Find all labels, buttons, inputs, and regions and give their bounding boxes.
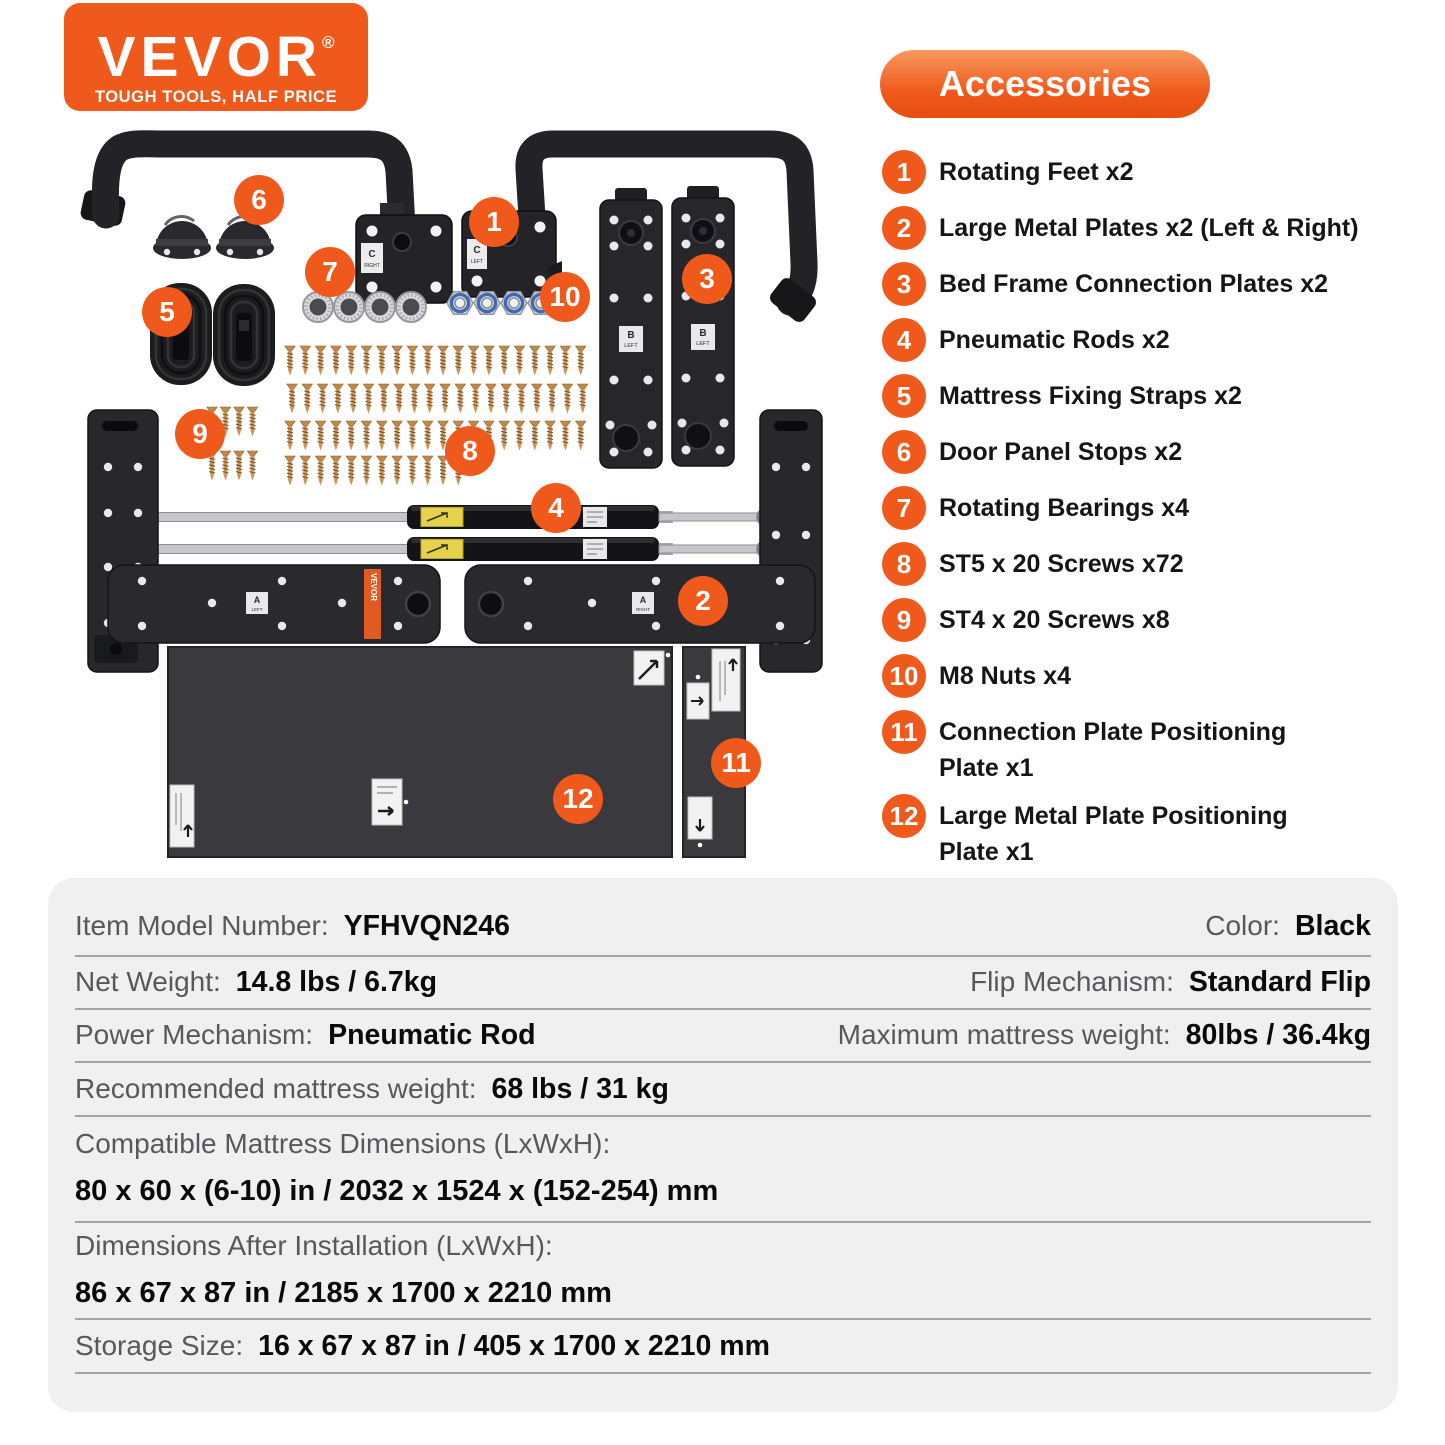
vevor-strip-label: VEVOR: [369, 573, 378, 601]
item-label: Rotating Bearings x4: [939, 486, 1189, 530]
spec-cell: Color: Black: [1205, 910, 1371, 943]
list-item-1: 1 Rotating Feet x2: [882, 150, 1427, 194]
item-number-badge: 2: [882, 206, 926, 250]
spec-label: Color:: [1205, 910, 1280, 942]
accessories-title: Accessories: [939, 63, 1151, 105]
spec-cell: Flip Mechanism: Standard Flip: [970, 966, 1371, 999]
collage-badge-11: 11: [711, 738, 761, 788]
spec-cell: Storage Size: 16 x 67 x 87 in / 405 x 17…: [75, 1330, 770, 1363]
spec-cell: Net Weight: 14.8 lbs / 6.7kg: [75, 966, 437, 999]
spec-value: 68 lbs / 31 kg: [492, 1073, 669, 1106]
list-item-4: 4 Pneumatic Rods x2: [882, 318, 1427, 362]
brand-text: VEVOR®: [64, 13, 368, 87]
item-label: Door Panel Stops x2: [939, 430, 1182, 474]
item-number-badge: 11: [882, 710, 926, 754]
collage-badge-5: 5: [142, 287, 192, 337]
pneumatic-rod-1: [138, 505, 774, 529]
spec-label: Net Weight:: [75, 966, 221, 998]
a-plate-right-label: A: [640, 595, 647, 605]
spec-cell: Power Mechanism: Pneumatic Rod: [75, 1019, 536, 1052]
list-item-12: 12 Large Metal Plate Positioning Plate x…: [882, 794, 1427, 870]
collage-badge-2: 2: [678, 576, 728, 626]
c-plate-right: C RIGHT: [356, 203, 452, 303]
panel-sticker-bottomleft: [170, 785, 194, 847]
collage-badge-9: 9: [175, 409, 225, 459]
pneumatic-rod-2: [138, 537, 774, 561]
pneumatic-rods: [138, 505, 774, 561]
item-number-badge: 10: [882, 654, 926, 698]
registered-mark: ®: [322, 33, 335, 52]
spec-label: Item Model Number:: [75, 910, 329, 942]
collage-badge-6: 6: [234, 175, 284, 225]
list-item-8: 8 ST5 x 20 Screws x72: [882, 542, 1427, 586]
spec-row-recommended-weight: Recommended mattress weight: 68 lbs / 31…: [75, 1063, 1371, 1117]
accessories-header: Accessories: [880, 50, 1210, 118]
item-label: Large Metal Plate Positioning Plate x1: [939, 794, 1288, 870]
a-plate-right-side-label: RIGHT: [636, 607, 650, 612]
collage-badge-7: 7: [305, 247, 355, 297]
item-label: Rotating Feet x2: [939, 150, 1133, 194]
item-number-badge: 3: [882, 262, 926, 306]
spec-value: Black: [1295, 910, 1371, 943]
collage-badge-3: 3: [682, 254, 732, 304]
item-number-badge: 12: [882, 794, 926, 838]
item-number-badge: 7: [882, 486, 926, 530]
spec-table: Item Model Number: YFHVQN246 Color: Blac…: [48, 878, 1398, 1412]
spec-row-installed-dimensions: Dimensions After Installation (LxWxH): 8…: [75, 1223, 1371, 1320]
spec-label: Compatible Mattress Dimensions (LxWxH):: [75, 1122, 610, 1166]
accessories-list: 1 Rotating Feet x2 2 Large Metal Plates …: [882, 150, 1427, 878]
item-label: ST5 x 20 Screws x72: [939, 542, 1184, 586]
spec-value: 80 x 60 x (6-10) in / 2032 x 1524 x (152…: [75, 1166, 718, 1216]
item-number-badge: 9: [882, 598, 926, 642]
spec-cell: Maximum mattress weight: 80lbs / 36.4kg: [838, 1019, 1371, 1052]
spec-cell: Item Model Number: YFHVQN246: [75, 910, 510, 943]
list-item-10: 10 M8 Nuts x4: [882, 654, 1427, 698]
spec-label: Recommended mattress weight:: [75, 1073, 477, 1105]
bed-frame-connection-plates: [600, 186, 734, 468]
item-label: Large Metal Plates x2 (Left & Right): [939, 206, 1359, 250]
spec-label: Dimensions After Installation (LxWxH):: [75, 1224, 553, 1268]
screw-grid-st5: [285, 346, 588, 486]
spec-label: Maximum mattress weight:: [838, 1019, 1171, 1051]
positioning-panel-large: [168, 647, 672, 857]
item-label: Bed Frame Connection Plates x2: [939, 262, 1328, 306]
collage-badge-1: 1: [469, 197, 519, 247]
collage-badge-8: 8: [445, 426, 495, 476]
spec-value: 80lbs / 36.4kg: [1186, 1019, 1371, 1052]
vevor-logo: VEVOR® TOUGH TOOLS, HALF PRICE: [64, 3, 368, 111]
product-collage: B LEFT: [80, 115, 870, 875]
collage-badge-10: 10: [540, 272, 590, 322]
spec-value: 86 x 67 x 87 in / 2185 x 1700 x 2210 mm: [75, 1268, 612, 1318]
list-item-6: 6 Door Panel Stops x2: [882, 430, 1427, 474]
list-item-2: 2 Large Metal Plates x2 (Left & Right): [882, 206, 1427, 250]
list-item-5: 5 Mattress Fixing Straps x2: [882, 374, 1427, 418]
c-plate-right-label: C: [368, 249, 375, 260]
spec-label: Power Mechanism:: [75, 1019, 313, 1051]
brand-tagline: TOUGH TOOLS, HALF PRICE: [64, 88, 368, 107]
item-number-badge: 1: [882, 150, 926, 194]
spec-row-mechanism: Power Mechanism: Pneumatic Rod Maximum m…: [75, 1010, 1371, 1063]
item-number-badge: 5: [882, 374, 926, 418]
spec-value: 14.8 lbs / 6.7kg: [236, 966, 437, 999]
spec-row-weight: Net Weight: 14.8 lbs / 6.7kg Flip Mechan…: [75, 957, 1371, 1010]
brand-name: VEVOR: [97, 25, 322, 89]
a-plate-left-side-label: LEFT: [251, 607, 262, 612]
spec-row-model: Item Model Number: YFHVQN246 Color: Blac…: [75, 897, 1371, 957]
c-plate-right-side-label: RIGHT: [364, 263, 380, 269]
item-label: M8 Nuts x4: [939, 654, 1071, 698]
page: VEVOR® TOUGH TOOLS, HALF PRICE Accessori…: [0, 0, 1445, 1445]
large-plate-left: A LEFT VEVOR: [88, 410, 440, 672]
item-label: Pneumatic Rods x2: [939, 318, 1170, 362]
item-label: Mattress Fixing Straps x2: [939, 374, 1242, 418]
spec-row-storage-size: Storage Size: 16 x 67 x 87 in / 405 x 17…: [75, 1320, 1371, 1374]
spec-value: YFHVQN246: [344, 910, 510, 943]
spec-label: Storage Size:: [75, 1330, 243, 1362]
a-plate-left-label: A: [254, 595, 261, 605]
collage-badge-4: 4: [531, 483, 581, 533]
spec-value: 16 x 67 x 87 in / 405 x 1700 x 2210 mm: [258, 1330, 770, 1363]
spec-label: Flip Mechanism:: [970, 966, 1174, 998]
list-item-3: 3 Bed Frame Connection Plates x2: [882, 262, 1427, 306]
item-number-badge: 8: [882, 542, 926, 586]
door-stop-1: [153, 217, 211, 259]
spec-row-mattress-dimensions: Compatible Mattress Dimensions (LxWxH): …: [75, 1117, 1371, 1223]
item-number-badge: 4: [882, 318, 926, 362]
narrow-sticker-top: [712, 649, 740, 711]
spec-value: Pneumatic Rod: [328, 1019, 535, 1052]
spec-value: Standard Flip: [1189, 966, 1371, 999]
item-number-badge: 6: [882, 430, 926, 474]
c-plate-left-label: C: [473, 245, 480, 256]
list-item-9: 9 ST4 x 20 Screws x8: [882, 598, 1427, 642]
collage-badge-12: 12: [553, 774, 603, 824]
list-item-7: 7 Rotating Bearings x4: [882, 486, 1427, 530]
item-label: Connection Plate Positioning Plate x1: [939, 710, 1286, 786]
list-item-11: 11 Connection Plate Positioning Plate x1: [882, 710, 1427, 786]
item-label: ST4 x 20 Screws x8: [939, 598, 1170, 642]
spec-cell: Recommended mattress weight: 68 lbs / 31…: [75, 1073, 669, 1106]
c-plate-left-side-label: LEFT: [471, 259, 483, 265]
